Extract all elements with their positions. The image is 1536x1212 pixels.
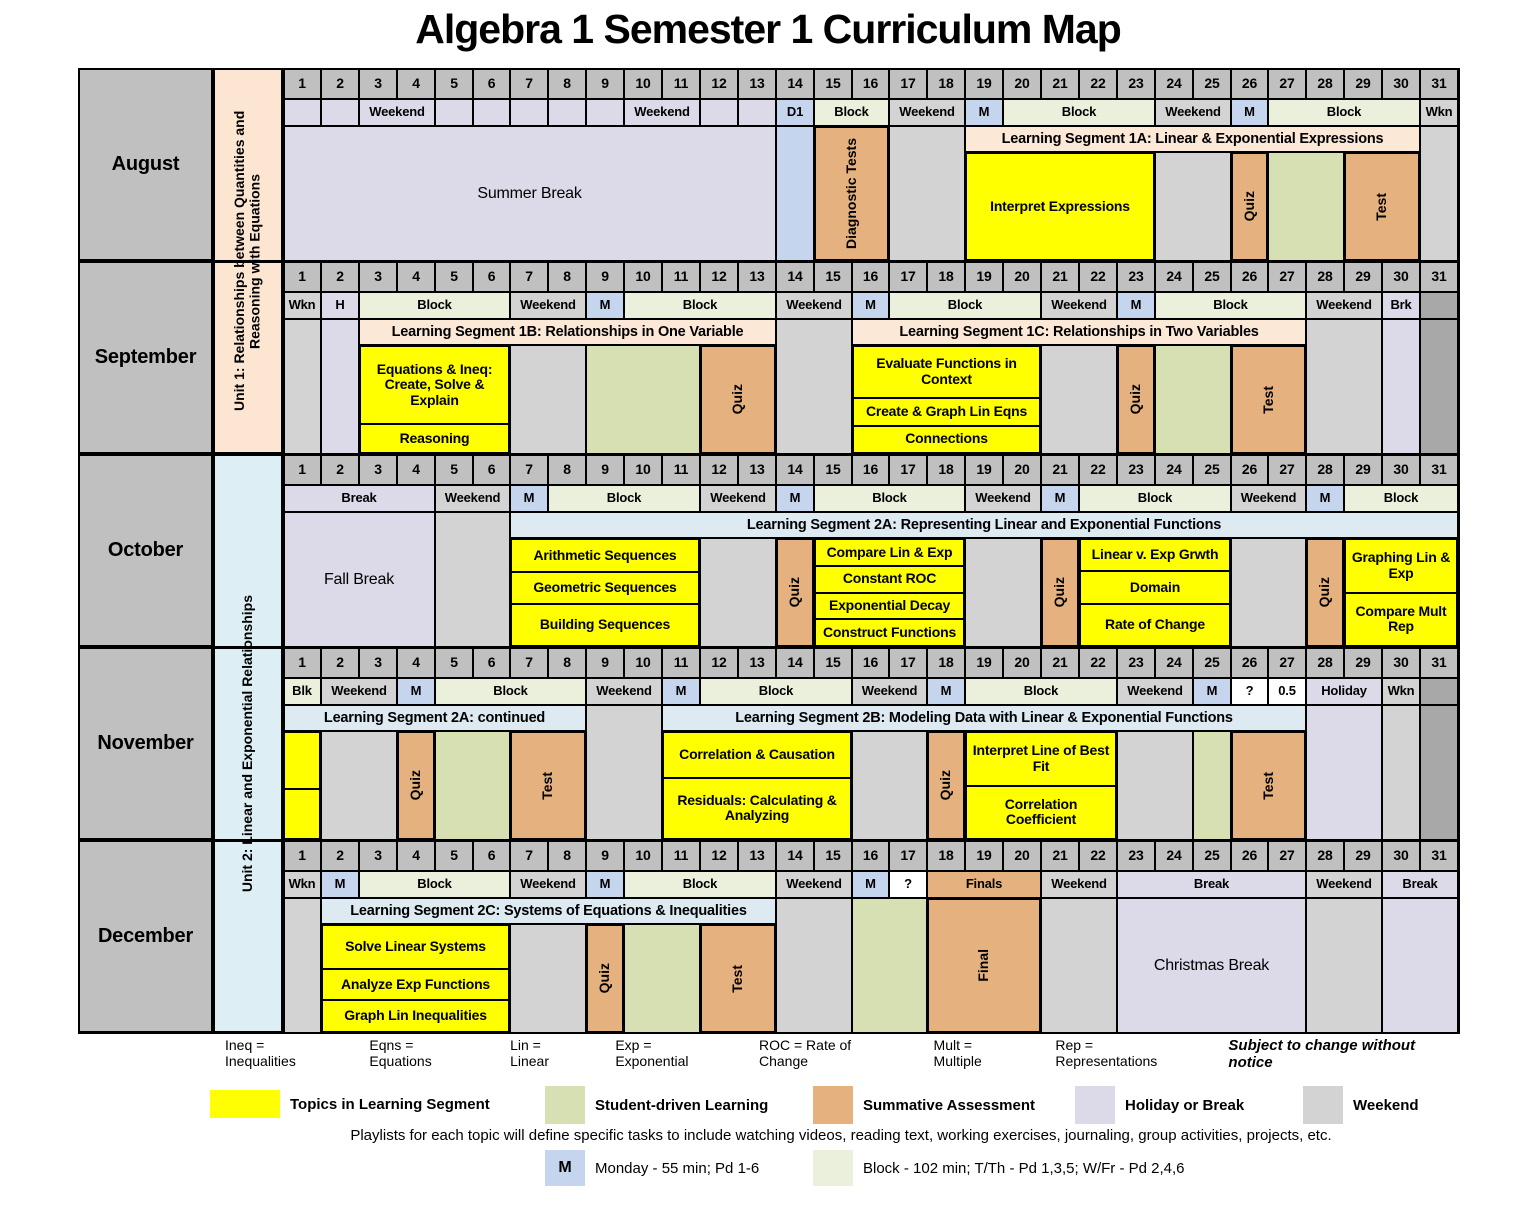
day-header-cell: 23 bbox=[1117, 68, 1155, 99]
curriculum-map-page: Algebra 1 Semester 1 Curriculum Map Augu… bbox=[0, 0, 1536, 1212]
topic-block: Building Sequences bbox=[510, 603, 700, 647]
day-header-cell: 22 bbox=[1079, 454, 1117, 485]
day-header-cell: 10 bbox=[624, 647, 662, 678]
day-type-cell bbox=[1420, 678, 1458, 705]
topic-stack: Solve Linear SystemsAnalyze Exp Function… bbox=[321, 924, 510, 1033]
day-type-cell: Weekend bbox=[435, 485, 510, 512]
topic-block: Compare Lin & Exp bbox=[814, 538, 965, 567]
day-header-cell: 6 bbox=[473, 840, 510, 871]
day-header-cell: 5 bbox=[435, 454, 473, 485]
day-type-cell: Weekend bbox=[700, 485, 776, 512]
day-header-cell: 22 bbox=[1079, 647, 1117, 678]
day-header-cell: 24 bbox=[1155, 68, 1193, 99]
day-header-cell: 1 bbox=[283, 840, 321, 871]
day-header-cell: 4 bbox=[397, 647, 435, 678]
assessment-block-label: Quiz bbox=[938, 770, 954, 800]
topic-block: Solve Linear Systems bbox=[321, 924, 510, 970]
day-header-cell: 12 bbox=[700, 261, 738, 292]
day-header-cell: 3 bbox=[359, 647, 397, 678]
day-type-cell: Finals bbox=[927, 871, 1041, 898]
day-header-cell: 16 bbox=[852, 454, 889, 485]
day-type-cell: Brk bbox=[1382, 292, 1420, 319]
day-header-cell: 31 bbox=[1420, 647, 1458, 678]
day-header-cell: 15 bbox=[814, 647, 852, 678]
day-type-cell: Wkn bbox=[283, 871, 321, 898]
topic-stack: Interpret Expressions bbox=[965, 152, 1155, 261]
day-header-cell: 25 bbox=[1193, 454, 1231, 485]
day-header-cell: 1 bbox=[283, 647, 321, 678]
student-learning-block bbox=[435, 731, 510, 840]
day-header-cell: 29 bbox=[1344, 454, 1382, 485]
day-header-cell: 18 bbox=[927, 261, 965, 292]
legend-label: Student-driven Learning bbox=[595, 1097, 768, 1114]
day-header-cell: 12 bbox=[700, 454, 738, 485]
grid-line bbox=[282, 68, 285, 1033]
assessment-block: Quiz bbox=[1041, 538, 1079, 647]
weekend-cell bbox=[776, 898, 852, 1033]
legend-label: Summative Assessment bbox=[863, 1097, 1035, 1114]
month-label: November bbox=[78, 647, 213, 840]
day-header-cell: 29 bbox=[1344, 261, 1382, 292]
day-header-cell: 17 bbox=[889, 261, 927, 292]
unit-label-label: Unit 2: Linear and Exponential Relations… bbox=[240, 595, 256, 892]
day-type-cell: Block bbox=[1079, 485, 1231, 512]
day-header-cell: 18 bbox=[927, 647, 965, 678]
day-type-cell: Wkn bbox=[283, 292, 321, 319]
day-header-cell: 29 bbox=[1344, 647, 1382, 678]
day-header-cell: 19 bbox=[965, 840, 1003, 871]
day-type-cell bbox=[586, 99, 624, 126]
day-type-cell: Block bbox=[1003, 99, 1155, 126]
day-type-cell: M bbox=[510, 485, 548, 512]
day-header-cell: 31 bbox=[1420, 261, 1458, 292]
topic-stack bbox=[283, 731, 321, 840]
day-header-cell: 7 bbox=[510, 454, 548, 485]
day-type-cell: Weekend bbox=[624, 99, 700, 126]
day-header-cell: 22 bbox=[1079, 68, 1117, 99]
abbreviation: Eqns = Equations bbox=[369, 1037, 476, 1071]
day-header-cell: 13 bbox=[738, 647, 776, 678]
day-type-cell: Weekend bbox=[1155, 99, 1231, 126]
day-type-cell: M bbox=[397, 678, 435, 705]
topic-stack: Graphing Lin & ExpCompare Mult Rep bbox=[1344, 538, 1458, 647]
legend-label: Weekend bbox=[1353, 1097, 1419, 1114]
legend-color-swatch bbox=[1303, 1086, 1343, 1124]
day-type-cell: M bbox=[965, 99, 1003, 126]
day-header-cell: 25 bbox=[1193, 647, 1231, 678]
monday-cell bbox=[776, 126, 814, 261]
day-type-cell: Break bbox=[283, 485, 435, 512]
topic-block: Arithmetic Sequences bbox=[510, 538, 700, 573]
legend-item: Student-driven Learning bbox=[545, 1086, 768, 1124]
day-type-cell: Block bbox=[1155, 292, 1306, 319]
day-header-cell: 4 bbox=[397, 68, 435, 99]
student-learning-block bbox=[1268, 152, 1344, 261]
grid-line bbox=[78, 646, 1459, 649]
day-type-cell: Block bbox=[814, 99, 889, 126]
day-type-cell: Block bbox=[359, 871, 510, 898]
day-header-cell: 28 bbox=[1306, 454, 1344, 485]
weekend-cell bbox=[283, 319, 321, 454]
day-type-cell bbox=[738, 99, 776, 126]
day-header-cell: 21 bbox=[1041, 647, 1079, 678]
day-type-cell: M bbox=[776, 485, 814, 512]
weekend-cell bbox=[321, 731, 397, 840]
day-header-cell: 4 bbox=[397, 261, 435, 292]
day-type-cell: M bbox=[927, 678, 965, 705]
topic-stack: Arithmetic SequencesGeometric SequencesB… bbox=[510, 538, 700, 647]
assessment-block-label: Quiz bbox=[1317, 577, 1333, 607]
day-type-cell: Weekend bbox=[359, 99, 435, 126]
day-header-cell: 27 bbox=[1268, 647, 1306, 678]
day-header-cell: 25 bbox=[1193, 840, 1231, 871]
day-header-cell: 12 bbox=[700, 840, 738, 871]
offmonth-cell bbox=[1420, 705, 1458, 840]
day-header-cell: 13 bbox=[738, 840, 776, 871]
day-type-cell: Weekend bbox=[1231, 485, 1306, 512]
weekend-cell bbox=[1420, 126, 1458, 261]
day-type-cell bbox=[321, 99, 359, 126]
topic-stack: Linear v. Exp GrwthDomainRate of Change bbox=[1079, 538, 1231, 647]
day-header-cell: 30 bbox=[1382, 840, 1420, 871]
day-header-cell: 8 bbox=[548, 840, 586, 871]
day-header-cell: 2 bbox=[321, 454, 359, 485]
topic-block: Equations & Ineq: Create, Solve & Explai… bbox=[359, 345, 510, 425]
day-header-cell: 9 bbox=[586, 261, 624, 292]
day-header-cell: 15 bbox=[814, 454, 852, 485]
assessment-block: Test bbox=[1231, 731, 1306, 840]
day-header-cell: 11 bbox=[662, 261, 700, 292]
day-type-cell: ? bbox=[1231, 678, 1268, 705]
segment-header: Learning Segment 1A: Linear & Exponentia… bbox=[965, 126, 1420, 152]
weekend-cell bbox=[283, 898, 321, 1033]
assessment-block-label: Diagnostic Tests bbox=[844, 138, 860, 249]
day-header-cell: 3 bbox=[359, 68, 397, 99]
topic-block: Graphing Lin & Exp bbox=[1344, 538, 1458, 594]
day-header-cell: 14 bbox=[776, 647, 814, 678]
day-header-cell: 11 bbox=[662, 454, 700, 485]
day-header-cell: 17 bbox=[889, 840, 927, 871]
day-type-cell: Weekend bbox=[510, 871, 586, 898]
day-type-cell: Block bbox=[624, 292, 776, 319]
segment-header: Learning Segment 2A: Representing Linear… bbox=[510, 512, 1458, 538]
grid-line bbox=[78, 453, 1459, 456]
assessment-block-label: Test bbox=[540, 772, 556, 800]
day-header-cell: 25 bbox=[1193, 68, 1231, 99]
day-header-cell: 14 bbox=[776, 68, 814, 99]
day-header-cell: 17 bbox=[889, 68, 927, 99]
day-header-cell: 20 bbox=[1003, 68, 1041, 99]
day-header-cell: 17 bbox=[889, 647, 927, 678]
day-header-cell: 28 bbox=[1306, 647, 1344, 678]
day-header-cell: 25 bbox=[1193, 261, 1231, 292]
grid-line bbox=[78, 839, 1459, 842]
segment-header: Learning Segment 1B: Relationships in On… bbox=[359, 319, 776, 345]
topic-stack: Evaluate Functions in ContextCreate & Gr… bbox=[852, 345, 1041, 454]
day-type-cell: M bbox=[1193, 678, 1231, 705]
day-type-cell: 0.5 bbox=[1268, 678, 1306, 705]
grid-line bbox=[78, 260, 1459, 263]
topic-block: Correlation Coefficient bbox=[965, 785, 1117, 841]
day-header-cell: 24 bbox=[1155, 454, 1193, 485]
day-header-cell: 4 bbox=[397, 840, 435, 871]
day-type-cell bbox=[1420, 292, 1458, 319]
break-cell bbox=[1382, 898, 1458, 1033]
day-header-cell: 8 bbox=[548, 647, 586, 678]
day-type-cell: Weekend bbox=[1041, 871, 1117, 898]
day-header-cell: 28 bbox=[1306, 261, 1344, 292]
day-header-cell: 13 bbox=[738, 454, 776, 485]
legend-color-swatch bbox=[1075, 1086, 1115, 1124]
month-label: October bbox=[78, 454, 213, 647]
day-header-cell: 1 bbox=[283, 261, 321, 292]
day-type-cell: Holiday bbox=[1306, 678, 1382, 705]
day-header-cell: 28 bbox=[1306, 68, 1344, 99]
day-header-cell: 27 bbox=[1268, 840, 1306, 871]
student-learning-block bbox=[852, 898, 927, 1033]
day-header-cell: 6 bbox=[473, 68, 510, 99]
day-header-cell: 19 bbox=[965, 647, 1003, 678]
day-header-cell: 7 bbox=[510, 647, 548, 678]
weekend-cell bbox=[435, 512, 510, 647]
day-header-cell: 8 bbox=[548, 261, 586, 292]
day-header-cell: 20 bbox=[1003, 647, 1041, 678]
day-header-cell: 15 bbox=[814, 68, 852, 99]
weekend-cell bbox=[1041, 898, 1117, 1033]
weekend-cell bbox=[1155, 152, 1231, 261]
day-header-cell: 9 bbox=[586, 68, 624, 99]
segment-header: Learning Segment 1C: Relationships in Tw… bbox=[852, 319, 1306, 345]
legend-color-swatch bbox=[545, 1086, 585, 1124]
day-header-cell: 7 bbox=[510, 261, 548, 292]
day-header-cell: 11 bbox=[662, 647, 700, 678]
legend-item: Topics in Learning Segment bbox=[210, 1090, 490, 1118]
day-header-cell: 28 bbox=[1306, 840, 1344, 871]
topic-block: Reasoning bbox=[359, 423, 510, 454]
topic-block bbox=[283, 788, 321, 840]
day-type-cell: Weekend bbox=[1306, 871, 1382, 898]
break-cell: Summer Break bbox=[283, 126, 776, 261]
topic-stack: Compare Lin & ExpConstant ROCExponential… bbox=[814, 538, 965, 647]
abbreviation: Ineq = Inequalities bbox=[225, 1037, 335, 1071]
day-type-cell: Weekend bbox=[776, 871, 852, 898]
assessment-block: Test bbox=[1344, 152, 1420, 261]
assessment-block-label: Quiz bbox=[1052, 577, 1068, 607]
day-type-cell: D1 bbox=[776, 99, 814, 126]
day-type-cell: H bbox=[321, 292, 359, 319]
day-header-cell: 27 bbox=[1268, 261, 1306, 292]
weekend-cell bbox=[1231, 538, 1306, 647]
day-type-cell: Block bbox=[814, 485, 965, 512]
topic-block: Graph Lin Inequalities bbox=[321, 999, 510, 1033]
day-header-cell: 16 bbox=[852, 840, 889, 871]
month-label: December bbox=[78, 840, 213, 1033]
weekend-cell bbox=[965, 538, 1041, 647]
day-header-cell: 9 bbox=[586, 840, 624, 871]
schedule-legend-item: MMonday - 55 min; Pd 1-6 bbox=[545, 1150, 759, 1186]
day-header-cell: 16 bbox=[852, 261, 889, 292]
day-header-cell: 29 bbox=[1344, 68, 1382, 99]
day-type-cell: M bbox=[321, 871, 359, 898]
day-type-cell: Weekend bbox=[1306, 292, 1382, 319]
topic-block: Geometric Sequences bbox=[510, 571, 700, 606]
day-header-cell: 21 bbox=[1041, 840, 1079, 871]
day-type-cell: M bbox=[662, 678, 700, 705]
assessment-block: Diagnostic Tests bbox=[814, 126, 889, 261]
day-header-cell: 26 bbox=[1231, 454, 1268, 485]
day-header-cell: 5 bbox=[435, 68, 473, 99]
day-type-cell: ? bbox=[889, 871, 927, 898]
day-header-cell: 19 bbox=[965, 261, 1003, 292]
day-header-cell: 19 bbox=[965, 454, 1003, 485]
day-header-cell: 30 bbox=[1382, 68, 1420, 99]
weekend-cell bbox=[852, 731, 927, 840]
day-header-cell: 1 bbox=[283, 68, 321, 99]
day-type-cell bbox=[548, 99, 586, 126]
day-type-cell: M bbox=[1117, 292, 1155, 319]
day-type-cell: M bbox=[852, 292, 889, 319]
day-type-cell bbox=[510, 99, 548, 126]
day-type-cell bbox=[700, 99, 738, 126]
abbreviation: Exp = Exponential bbox=[615, 1037, 725, 1071]
day-header-cell: 30 bbox=[1382, 454, 1420, 485]
student-learning-block bbox=[1193, 731, 1231, 840]
disclaimer: Subject to change without notice bbox=[1228, 1037, 1460, 1071]
topic-stack: Interpret Line of Best FitCorrelation Co… bbox=[965, 731, 1117, 840]
topic-stack: Equations & Ineq: Create, Solve & Explai… bbox=[359, 345, 510, 454]
day-type-cell: Weekend bbox=[586, 678, 662, 705]
day-header-cell: 18 bbox=[927, 68, 965, 99]
day-header-cell: 16 bbox=[852, 68, 889, 99]
topic-stack: Correlation & CausationResiduals: Calcul… bbox=[662, 731, 852, 840]
schedule-text: Block - 102 min; T/Th - Pd 1,3,5; W/Fr -… bbox=[863, 1160, 1185, 1177]
day-header-cell: 10 bbox=[624, 261, 662, 292]
topic-block: Evaluate Functions in Context bbox=[852, 345, 1041, 399]
day-type-cell: M bbox=[1041, 485, 1079, 512]
day-header-cell: 3 bbox=[359, 840, 397, 871]
assessment-block-label: Quiz bbox=[787, 577, 803, 607]
student-learning-block bbox=[1155, 345, 1231, 454]
assessment-block-label: Quiz bbox=[1128, 384, 1144, 414]
day-type-cell: Weekend bbox=[1041, 292, 1117, 319]
topic-block: Constant ROC bbox=[814, 565, 965, 594]
day-type-cell: Weekend bbox=[776, 292, 852, 319]
day-type-cell bbox=[435, 99, 473, 126]
student-learning-block bbox=[586, 345, 700, 454]
abbreviations-row: Ineq = InequalitiesEqns = EquationsLin =… bbox=[78, 1037, 1460, 1071]
day-header-cell: 16 bbox=[852, 647, 889, 678]
day-header-cell: 18 bbox=[927, 454, 965, 485]
day-header-cell: 7 bbox=[510, 840, 548, 871]
grid-line bbox=[212, 68, 215, 1033]
day-type-cell: Block bbox=[1268, 99, 1420, 126]
day-header-cell: 19 bbox=[965, 68, 1003, 99]
assessment-block: Quiz bbox=[700, 345, 776, 454]
assessment-block: Quiz bbox=[927, 731, 965, 840]
day-header-cell: 22 bbox=[1079, 261, 1117, 292]
day-header-cell: 6 bbox=[473, 647, 510, 678]
day-header-cell: 21 bbox=[1041, 261, 1079, 292]
day-type-cell: Block bbox=[435, 678, 586, 705]
weekend-cell bbox=[889, 126, 965, 261]
day-header-cell: 5 bbox=[435, 261, 473, 292]
day-header-cell: 21 bbox=[1041, 454, 1079, 485]
topic-block: Construct Functions bbox=[814, 618, 965, 647]
assessment-block: Test bbox=[510, 731, 586, 840]
topic-block: Correlation & Causation bbox=[662, 731, 852, 779]
day-header-cell: 6 bbox=[473, 261, 510, 292]
day-type-cell bbox=[283, 99, 321, 126]
legend-item: Weekend bbox=[1303, 1086, 1419, 1124]
month-label: September bbox=[78, 261, 213, 454]
assessment-block-label: Quiz bbox=[1242, 191, 1258, 221]
day-header-cell: 31 bbox=[1420, 840, 1458, 871]
day-header-cell: 21 bbox=[1041, 68, 1079, 99]
day-type-cell: Weekend bbox=[852, 678, 927, 705]
weekend-cell bbox=[1382, 705, 1420, 840]
day-header-cell: 11 bbox=[662, 68, 700, 99]
day-header-cell: 26 bbox=[1231, 68, 1268, 99]
day-header-cell: 30 bbox=[1382, 647, 1420, 678]
topic-block: Interpret Expressions bbox=[965, 152, 1155, 261]
assessment-block: Final bbox=[927, 898, 1041, 1033]
day-type-cell: M bbox=[586, 292, 624, 319]
day-header-cell: 24 bbox=[1155, 840, 1193, 871]
assessment-block: Test bbox=[700, 924, 776, 1033]
day-type-cell: Break bbox=[1382, 871, 1458, 898]
day-header-cell: 24 bbox=[1155, 261, 1193, 292]
legend-item: Holiday or Break bbox=[1075, 1086, 1244, 1124]
day-header-cell: 7 bbox=[510, 68, 548, 99]
day-header-cell: 8 bbox=[548, 454, 586, 485]
day-header-cell: 26 bbox=[1231, 840, 1268, 871]
legend-label: Topics in Learning Segment bbox=[290, 1096, 490, 1113]
curriculum-table: August1234567891011121314151617181920212… bbox=[78, 68, 1460, 1034]
day-type-cell: Block bbox=[548, 485, 700, 512]
day-type-cell: Block bbox=[700, 678, 852, 705]
day-header-cell: 15 bbox=[814, 261, 852, 292]
assessment-block-label: Test bbox=[1374, 193, 1390, 221]
weekend-cell bbox=[586, 705, 662, 840]
topic-block: Analyze Exp Functions bbox=[321, 968, 510, 1002]
day-type-cell: Wkn bbox=[1382, 678, 1420, 705]
day-header-cell: 10 bbox=[624, 840, 662, 871]
day-type-cell: M bbox=[1306, 485, 1344, 512]
day-header-cell: 5 bbox=[435, 647, 473, 678]
day-header-cell: 2 bbox=[321, 840, 359, 871]
day-type-cell: Wkn bbox=[1420, 99, 1458, 126]
topic-block: Exponential Decay bbox=[814, 592, 965, 621]
weekend-cell bbox=[510, 345, 586, 454]
day-header-cell: 26 bbox=[1231, 647, 1268, 678]
break-cell bbox=[321, 319, 359, 454]
day-header-cell: 6 bbox=[473, 454, 510, 485]
topic-block: Compare Mult Rep bbox=[1344, 592, 1458, 648]
break-cell: Fall Break bbox=[283, 512, 435, 647]
day-header-cell: 22 bbox=[1079, 840, 1117, 871]
abbreviation: Rep = Representations bbox=[1055, 1037, 1194, 1071]
unit-label: Unit 2: Linear and Exponential Relations… bbox=[213, 454, 283, 1033]
assessment-block: Quiz bbox=[1117, 345, 1155, 454]
schedule-legend-item: Block - 102 min; T/Th - Pd 1,3,5; W/Fr -… bbox=[813, 1150, 1185, 1186]
topic-block: Interpret Line of Best Fit bbox=[965, 731, 1117, 787]
day-header-cell: 13 bbox=[738, 68, 776, 99]
assessment-block-label: Test bbox=[1261, 772, 1277, 800]
segment-header: Learning Segment 2B: Modeling Data with … bbox=[662, 705, 1306, 731]
day-header-cell: 23 bbox=[1117, 454, 1155, 485]
month-label: August bbox=[78, 68, 213, 261]
weekend-cell bbox=[510, 924, 586, 1033]
